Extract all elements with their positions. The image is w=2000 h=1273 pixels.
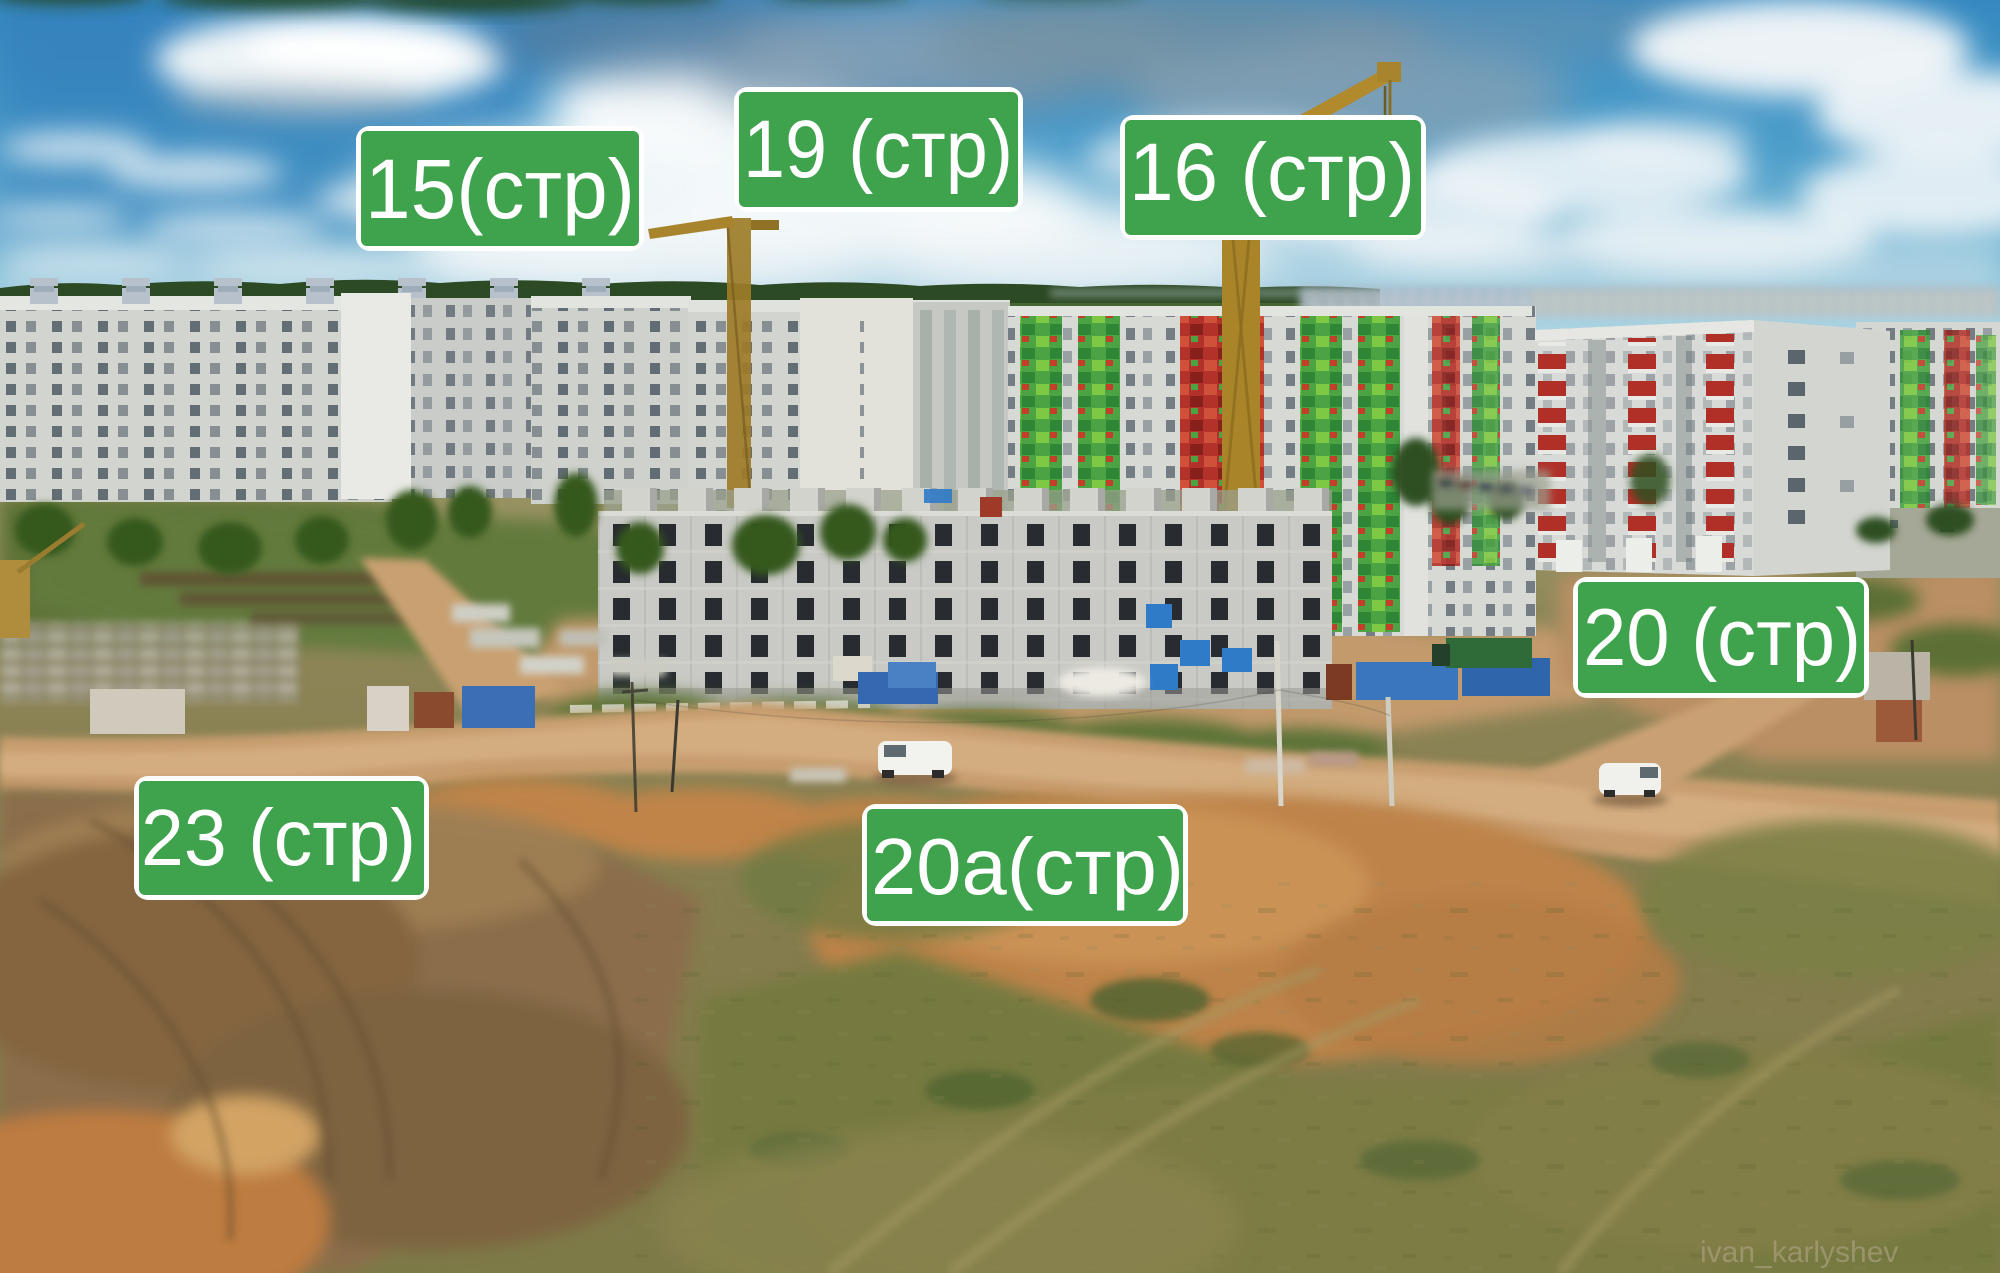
svg-text:19 (стр): 19 (стр) [743, 104, 1013, 195]
svg-text:15(стр): 15(стр) [365, 142, 635, 236]
svg-text:20 (стр): 20 (стр) [1583, 593, 1861, 683]
svg-text:23 (стр): 23 (стр) [141, 793, 416, 882]
svg-text:ivan_karlyshev: ivan_karlyshev [1700, 1236, 1898, 1269]
svg-text:20а(стр): 20а(стр) [871, 822, 1184, 911]
svg-text:16 (стр): 16 (стр) [1129, 127, 1415, 218]
